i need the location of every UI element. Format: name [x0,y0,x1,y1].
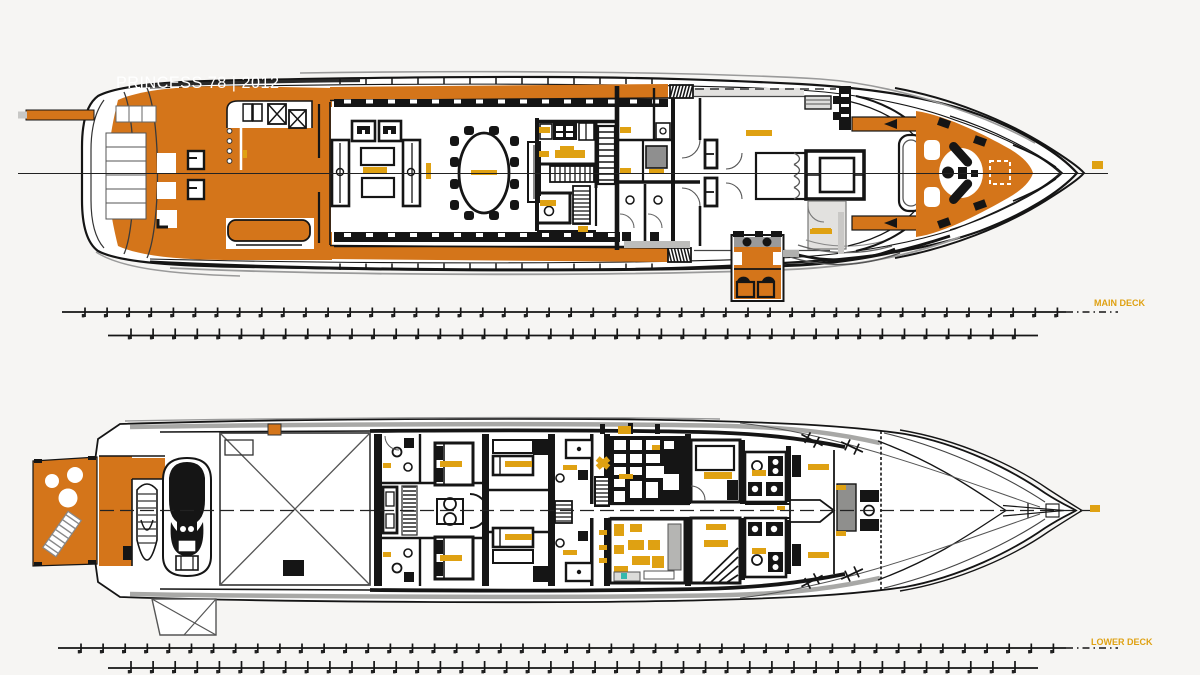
svg-text:PRINCESS 78 | 2012: PRINCESS 78 | 2012 [116,74,279,92]
svg-text:LOWER DECK: LOWER DECK [1091,637,1153,647]
svg-text:MAIN DECK: MAIN DECK [1094,298,1145,308]
